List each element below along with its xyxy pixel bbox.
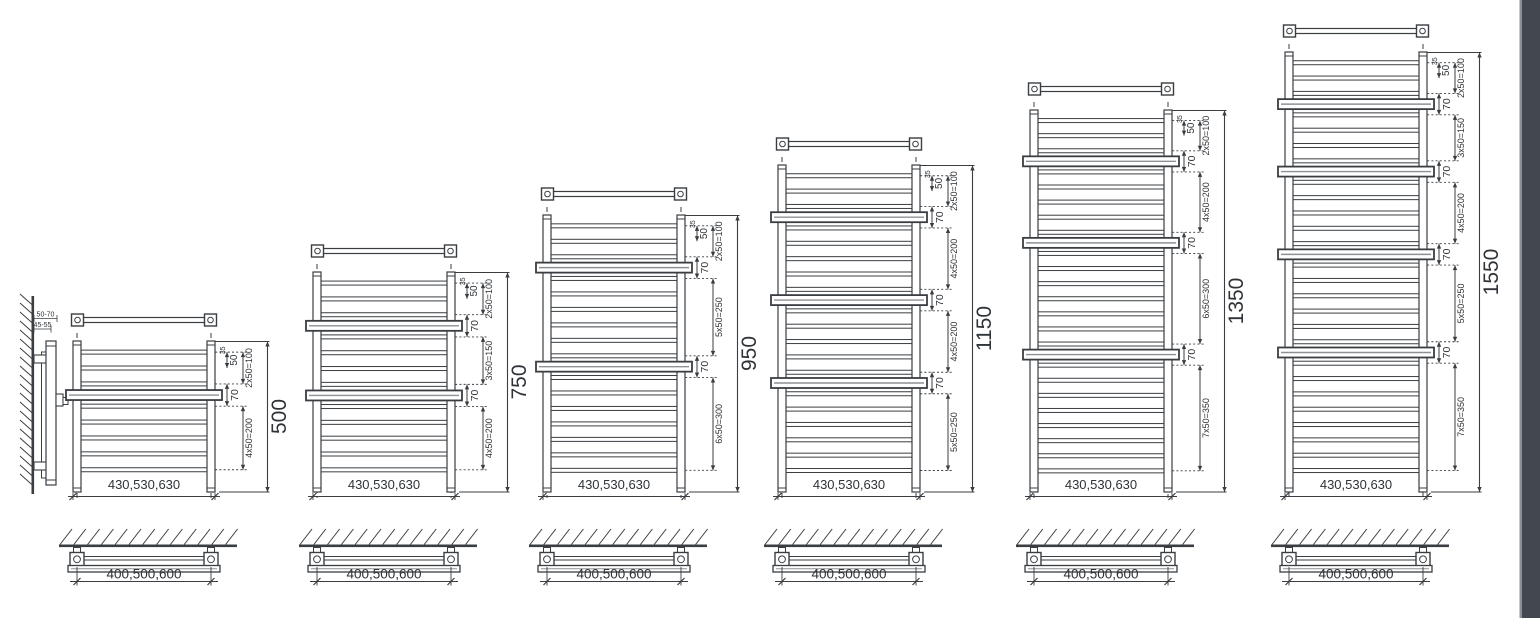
side-bottom-bracket bbox=[34, 462, 47, 470]
top-rail-bar bbox=[1033, 87, 1169, 92]
wall-hatch-line bbox=[226, 529, 238, 545]
arrowhead bbox=[1453, 363, 1457, 368]
wall-hatch-line bbox=[1031, 529, 1043, 545]
bracket-circle bbox=[208, 317, 214, 323]
width-dim-label: 430,530,630 bbox=[1320, 477, 1392, 492]
drawing-canvas: 50-7045-553550702x50=1004x50=200500430,5… bbox=[0, 0, 1540, 618]
towel-rung bbox=[76, 404, 212, 408]
wall-hatch-line bbox=[438, 529, 450, 545]
arrowhead bbox=[1182, 232, 1186, 237]
towel-rung bbox=[1033, 363, 1169, 367]
towel-rung bbox=[546, 391, 682, 395]
towel-rung bbox=[1033, 134, 1169, 138]
arrowhead bbox=[465, 315, 469, 320]
towel-rung bbox=[546, 354, 682, 358]
arrowhead bbox=[1222, 111, 1226, 116]
arrowhead bbox=[930, 289, 934, 294]
plan-wall-line bbox=[764, 545, 942, 548]
towel-rung bbox=[1288, 180, 1424, 184]
towel-rung bbox=[316, 405, 452, 409]
towel-rung bbox=[546, 276, 682, 280]
gap-70-label: 70 bbox=[934, 377, 946, 389]
arrowhead bbox=[930, 372, 934, 377]
bracket-circle bbox=[314, 556, 321, 563]
towel-rung bbox=[1033, 312, 1169, 316]
gap-50-label: 50 bbox=[1441, 64, 1452, 76]
wall-hatch-line bbox=[779, 529, 791, 545]
towel-rung bbox=[1288, 113, 1424, 117]
top-gap-35-label: 35 bbox=[690, 220, 697, 228]
width-dim-label: 430,530,630 bbox=[813, 477, 885, 492]
wall-hatch-line bbox=[355, 529, 367, 545]
gap-70-label: 70 bbox=[934, 211, 946, 223]
segment-dim-label: 5x50=250 bbox=[1456, 284, 1466, 324]
wall-hatch-line bbox=[627, 529, 639, 545]
segment-dim-label: 2x50=100 bbox=[949, 171, 959, 211]
wall-hatch-line bbox=[875, 529, 887, 545]
bracket-distance-label: 45-55 bbox=[34, 322, 52, 329]
towel-rung bbox=[1288, 407, 1424, 411]
towel-rung bbox=[1288, 226, 1424, 230]
towel-rung bbox=[546, 239, 682, 243]
towel-rung bbox=[1288, 438, 1424, 442]
towel-rung bbox=[781, 204, 917, 208]
wall-hatch-line bbox=[571, 529, 583, 545]
towel-rung bbox=[781, 226, 917, 230]
towel-rung bbox=[316, 351, 452, 355]
arrowhead bbox=[505, 487, 509, 492]
segment-dim-label: 2x50=100 bbox=[714, 221, 724, 261]
wall-hatch-line bbox=[1355, 529, 1367, 545]
bracket-circle bbox=[544, 556, 551, 563]
bracket-circle bbox=[1165, 86, 1171, 92]
towel-rung bbox=[1288, 361, 1424, 365]
towel-rung bbox=[546, 468, 682, 472]
side-valve bbox=[56, 394, 63, 406]
towel-rung bbox=[1288, 324, 1424, 328]
arrowhead bbox=[1182, 344, 1186, 349]
width-dim-label: 430,530,630 bbox=[348, 477, 420, 492]
footprint-dim-label: 400,500,600 bbox=[576, 567, 651, 582]
wall-hatch-line bbox=[1155, 529, 1167, 545]
arrowhead bbox=[695, 356, 699, 361]
bracket-circle bbox=[913, 556, 920, 563]
wall-hatch-line bbox=[1086, 529, 1098, 545]
towel-rung bbox=[1288, 61, 1424, 65]
wall-hatch-line bbox=[917, 529, 929, 545]
towel-rung bbox=[1033, 342, 1169, 346]
towel-rung bbox=[781, 241, 917, 245]
arrowhead bbox=[225, 401, 229, 406]
gap-70-label: 70 bbox=[1441, 346, 1453, 358]
arrowhead bbox=[1477, 53, 1481, 58]
arrowhead bbox=[735, 216, 739, 221]
gap-70-label: 70 bbox=[1441, 248, 1453, 260]
wall-hatch-line bbox=[1058, 529, 1070, 545]
bracket-circle bbox=[74, 556, 81, 563]
plan-wall-line bbox=[1016, 545, 1194, 548]
wall-hatch-line bbox=[1410, 529, 1422, 545]
top-rail-bar bbox=[76, 318, 212, 323]
wall-hatch-line bbox=[129, 529, 141, 545]
towel-rung bbox=[781, 272, 917, 276]
towel-rung bbox=[1033, 200, 1169, 204]
segment-dim-label: 7x50=350 bbox=[1201, 398, 1211, 438]
collector-tube-left bbox=[73, 341, 81, 492]
towel-rung bbox=[546, 292, 682, 296]
wall-hatch-line bbox=[1369, 529, 1381, 545]
arrowhead bbox=[970, 487, 974, 492]
arrowhead bbox=[1437, 342, 1441, 347]
segment-dim-label: 4x50=200 bbox=[949, 239, 959, 279]
towel-rung bbox=[1033, 378, 1169, 382]
wall-hatch-line bbox=[834, 529, 846, 545]
arrowhead bbox=[1437, 93, 1441, 98]
wall-hatch-line bbox=[1127, 529, 1139, 545]
towel-rung bbox=[1033, 149, 1169, 153]
wall-hatch-line bbox=[862, 529, 874, 545]
segment-dim-label: 5x50=250 bbox=[714, 297, 724, 337]
footprint-dim-label: 400,500,600 bbox=[106, 567, 181, 582]
wall-hatch-line bbox=[328, 529, 340, 545]
towel-rung bbox=[781, 355, 917, 359]
towel-rung bbox=[1033, 119, 1169, 123]
footprint-dim-label: 400,500,600 bbox=[811, 567, 886, 582]
height-dim-label: 1150 bbox=[973, 306, 996, 351]
arrowhead bbox=[946, 466, 950, 471]
wall-hatch-line bbox=[1327, 529, 1339, 545]
wall-hatch-line bbox=[613, 529, 625, 545]
wall-hatch-line bbox=[1141, 529, 1153, 545]
towel-rung bbox=[316, 297, 452, 301]
towel-rung bbox=[1033, 424, 1169, 428]
wall-hatch-line bbox=[544, 529, 556, 545]
bracket-circle bbox=[448, 556, 455, 563]
gap-70-label: 70 bbox=[1441, 166, 1453, 178]
arrowhead bbox=[505, 273, 509, 278]
wall-hatch-line bbox=[184, 529, 196, 545]
arrowhead bbox=[1453, 182, 1457, 187]
arrowhead bbox=[711, 465, 715, 470]
towel-rung bbox=[316, 420, 452, 424]
towel-rung bbox=[546, 437, 682, 441]
wall-hatch-line bbox=[452, 529, 464, 545]
towel-rung bbox=[781, 453, 917, 457]
wall-hatch-line bbox=[640, 529, 652, 545]
towel-rung bbox=[1033, 267, 1169, 271]
wall-hatch-line bbox=[765, 529, 777, 545]
arrowhead bbox=[1198, 466, 1202, 471]
wall-hatch-line bbox=[1438, 529, 1450, 545]
arrowhead bbox=[265, 487, 269, 492]
segment-dim-label: 4x50=200 bbox=[244, 418, 254, 458]
towel-rung bbox=[546, 255, 682, 259]
plan-wall-line bbox=[529, 545, 707, 548]
towel-rung bbox=[781, 340, 917, 344]
wall-hatch-line bbox=[198, 529, 210, 545]
bracket-circle bbox=[448, 248, 454, 254]
segment-dim-label: 4x50=200 bbox=[1201, 182, 1211, 222]
side-collector-tube bbox=[46, 341, 56, 485]
towel-rung bbox=[781, 370, 917, 374]
wall-hatch-line bbox=[424, 529, 436, 545]
towel-rung bbox=[781, 309, 917, 313]
towel-rung bbox=[1288, 211, 1424, 215]
wall-hatch-line bbox=[889, 529, 901, 545]
wall-hatch-line bbox=[74, 529, 86, 545]
wall-hatch-line bbox=[654, 529, 666, 545]
towel-rung bbox=[546, 375, 682, 379]
bracket-circle bbox=[780, 141, 786, 147]
height-dim-label: 1350 bbox=[1225, 278, 1248, 325]
arrowhead bbox=[265, 342, 269, 347]
bracket-circle bbox=[545, 191, 551, 197]
wall-hatch-line bbox=[931, 529, 943, 545]
collector-tube-right bbox=[1419, 52, 1427, 492]
height-dim-label: 950 bbox=[738, 336, 761, 371]
segment-dim-label: 2x50=100 bbox=[484, 279, 494, 319]
arrowhead bbox=[481, 407, 485, 412]
towel-rung bbox=[1288, 196, 1424, 200]
towel-rung bbox=[781, 407, 917, 411]
segment-dim-label: 2x50=100 bbox=[1456, 58, 1466, 98]
towel-rung bbox=[1033, 439, 1169, 443]
towel-rung bbox=[546, 224, 682, 228]
wall-hatch-line bbox=[1045, 529, 1057, 545]
arrowhead bbox=[241, 465, 245, 470]
arrowhead bbox=[241, 406, 245, 411]
width-dim-label: 430,530,630 bbox=[1065, 477, 1137, 492]
wall-hatch-line bbox=[848, 529, 860, 545]
towel-rung bbox=[316, 281, 452, 285]
arrowhead bbox=[1437, 244, 1441, 249]
page-edge-highlight bbox=[1520, 0, 1523, 618]
wall-hatch-line bbox=[793, 529, 805, 545]
gap-70-label: 70 bbox=[699, 361, 711, 373]
towel-rung bbox=[781, 189, 917, 193]
gap-50-label: 50 bbox=[699, 228, 710, 240]
height-dim-label: 1550 bbox=[1480, 249, 1503, 296]
towel-rung bbox=[76, 382, 212, 386]
gap-70-label: 70 bbox=[934, 294, 946, 306]
top-gap-35-label: 35 bbox=[220, 346, 227, 354]
arrowhead bbox=[1198, 227, 1202, 232]
segment-dim-label: 2x50=100 bbox=[1201, 116, 1211, 156]
collector-tube-left bbox=[543, 215, 551, 492]
arrowhead bbox=[970, 166, 974, 171]
footprint-dim-label: 400,500,600 bbox=[1318, 567, 1393, 582]
towel-rung bbox=[781, 469, 917, 473]
towel-rung bbox=[76, 452, 212, 456]
wall-hatch-line bbox=[1114, 529, 1126, 545]
wall-hatch-line bbox=[1100, 529, 1112, 545]
top-gap-35-label: 35 bbox=[925, 170, 932, 178]
wall-hatch-line bbox=[88, 529, 100, 545]
gap-50-label: 50 bbox=[934, 177, 945, 189]
towel-rung bbox=[1033, 297, 1169, 301]
towel-rung bbox=[1288, 263, 1424, 267]
wall-hatch-line bbox=[1017, 529, 1029, 545]
wall-hatch-line bbox=[1272, 529, 1284, 545]
arrowhead bbox=[1453, 239, 1457, 244]
wall-hatch-line bbox=[212, 529, 224, 545]
towel-rung bbox=[1288, 76, 1424, 80]
towel-rung bbox=[1288, 128, 1424, 132]
towel-rung bbox=[781, 392, 917, 396]
towel-rung bbox=[316, 382, 452, 386]
towel-rung bbox=[316, 452, 452, 456]
collector-tube-right bbox=[447, 272, 455, 492]
wall-hatch-line bbox=[157, 529, 169, 545]
arrowhead bbox=[946, 311, 950, 316]
towel-rung bbox=[1288, 377, 1424, 381]
segment-dim-label: 6x50=300 bbox=[1201, 279, 1211, 319]
gap-70-label: 70 bbox=[469, 389, 481, 401]
wall-hatch-line bbox=[903, 529, 915, 545]
footprint-dim-label: 400,500,600 bbox=[1063, 567, 1138, 582]
gap-50-label: 50 bbox=[469, 285, 480, 297]
top-gap-35-label: 35 bbox=[460, 277, 467, 285]
towel-rung bbox=[76, 366, 212, 370]
towel-rung bbox=[1033, 282, 1169, 286]
towel-rung bbox=[781, 324, 917, 328]
wall-hatch-line bbox=[668, 529, 680, 545]
side-top-bracket bbox=[34, 355, 47, 363]
towel-rung bbox=[316, 335, 452, 339]
bracket-circle bbox=[208, 556, 215, 563]
towel-rung bbox=[546, 323, 682, 327]
bracket-circle bbox=[678, 556, 685, 563]
top-gap-35-label: 35 bbox=[1177, 115, 1184, 123]
wall-hatch-line bbox=[820, 529, 832, 545]
gap-50-label: 50 bbox=[1186, 122, 1197, 134]
arrowhead bbox=[1453, 337, 1457, 342]
arrowhead bbox=[1453, 466, 1457, 471]
wall-hatch-line bbox=[101, 529, 113, 545]
segment-dim-label: 2x50=100 bbox=[244, 348, 254, 388]
towel-rung bbox=[546, 307, 682, 311]
wall-hatch-line bbox=[1300, 529, 1312, 545]
side-mounting-rail bbox=[42, 352, 47, 478]
wall-hatch-line bbox=[300, 529, 312, 545]
wall-hatch-line bbox=[1424, 529, 1436, 545]
towel-rung bbox=[1288, 278, 1424, 282]
arrowhead bbox=[946, 367, 950, 372]
arrowhead bbox=[465, 384, 469, 389]
wall-distance-label: 50-70 bbox=[37, 312, 55, 319]
segment-dim-label: 7x50=350 bbox=[1456, 397, 1466, 437]
towel-rung bbox=[1288, 309, 1424, 313]
arrowhead bbox=[1453, 265, 1457, 270]
wall-hatch-line bbox=[599, 529, 611, 545]
gap-70-label: 70 bbox=[229, 389, 241, 401]
towel-rung bbox=[76, 420, 212, 424]
width-dim-label: 430,530,630 bbox=[578, 477, 650, 492]
towel-rung bbox=[546, 338, 682, 342]
towel-rung bbox=[316, 367, 452, 371]
towel-rung bbox=[1033, 408, 1169, 412]
wall-hatch-line bbox=[369, 529, 381, 545]
top-rail-bar bbox=[1288, 29, 1424, 34]
towel-rung bbox=[1288, 91, 1424, 95]
towel-rung bbox=[76, 436, 212, 440]
segment-dim-label: 5x50=250 bbox=[949, 412, 959, 452]
bracket-circle bbox=[678, 191, 684, 197]
towel-rung bbox=[546, 453, 682, 457]
towel-rung bbox=[1288, 392, 1424, 396]
arrowhead bbox=[930, 206, 934, 211]
wall-hatch-line bbox=[558, 529, 570, 545]
towel-rung bbox=[781, 257, 917, 261]
arrowhead bbox=[225, 384, 229, 389]
collector-tube-right bbox=[677, 215, 685, 492]
arrowhead bbox=[1198, 172, 1202, 177]
height-dim-label: 750 bbox=[508, 364, 531, 399]
towel-rung bbox=[1288, 423, 1424, 427]
wall-hatch-line bbox=[682, 529, 694, 545]
arrowhead bbox=[946, 394, 950, 399]
top-rail-bar bbox=[546, 192, 682, 197]
wall-hatch-line bbox=[1313, 529, 1325, 545]
arrowhead bbox=[946, 228, 950, 233]
arrowhead bbox=[481, 465, 485, 470]
collector-tube-left bbox=[1030, 110, 1038, 492]
arrowhead bbox=[1182, 151, 1186, 156]
towel-rung bbox=[1288, 340, 1424, 344]
wall-hatch-line bbox=[341, 529, 353, 545]
wall-hatch-line bbox=[314, 529, 326, 545]
top-gap-35-label: 35 bbox=[1432, 57, 1439, 65]
wall-hatch-line bbox=[397, 529, 409, 545]
bracket-circle bbox=[1420, 556, 1427, 563]
plan-wall-line bbox=[59, 545, 237, 548]
towel-rung bbox=[1288, 242, 1424, 246]
bracket-circle bbox=[913, 141, 919, 147]
page-edge-strip bbox=[1522, 0, 1540, 618]
wall-hatch-line bbox=[1341, 529, 1353, 545]
arrowhead bbox=[946, 284, 950, 289]
towel-rung bbox=[546, 406, 682, 410]
arrowhead bbox=[1198, 253, 1202, 258]
towel-rung bbox=[316, 313, 452, 317]
arrowhead bbox=[465, 332, 469, 337]
bracket-circle bbox=[1287, 28, 1293, 34]
plan-wall-line bbox=[1271, 545, 1449, 548]
width-dim-label: 430,530,630 bbox=[108, 477, 180, 492]
towel-rung bbox=[1288, 294, 1424, 298]
gap-70-label: 70 bbox=[469, 320, 481, 332]
bracket-circle bbox=[1032, 86, 1038, 92]
towel-rung bbox=[1033, 170, 1169, 174]
bracket-circle bbox=[1165, 556, 1172, 563]
arrowhead bbox=[695, 257, 699, 262]
towel-rung bbox=[1033, 393, 1169, 397]
wall-hatch-line bbox=[466, 529, 478, 545]
bracket-circle bbox=[75, 317, 81, 323]
wall-hatch-line bbox=[115, 529, 127, 545]
towel-rung bbox=[546, 422, 682, 426]
radiator-dimension-drawing: 50-7045-553550702x50=1004x50=200500430,5… bbox=[0, 0, 1540, 618]
arrowhead bbox=[1198, 339, 1202, 344]
segment-dim-label: 3x50=150 bbox=[484, 341, 494, 381]
towel-rung bbox=[1033, 230, 1169, 234]
height-dim-label: 500 bbox=[268, 399, 291, 434]
wall-hatch-line bbox=[1382, 529, 1394, 545]
towel-rung bbox=[1288, 469, 1424, 473]
wall-hatch-line bbox=[383, 529, 395, 545]
bracket-circle bbox=[779, 556, 786, 563]
towel-rung bbox=[316, 436, 452, 440]
